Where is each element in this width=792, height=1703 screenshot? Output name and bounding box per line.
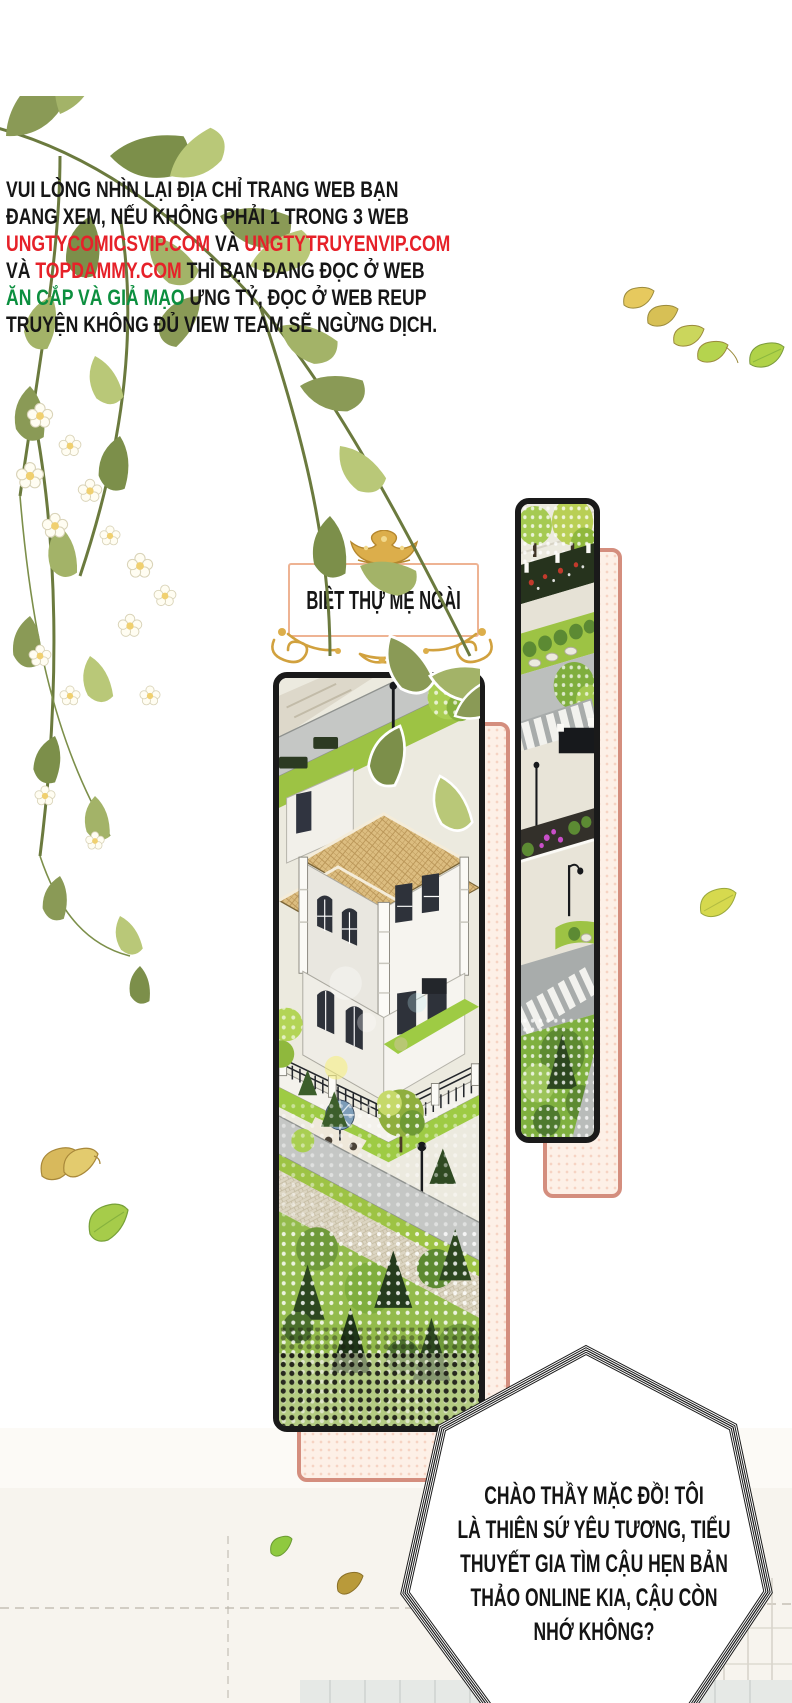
notice-line: TRUYỆN KHÔNG ĐỦ VIEW TEAM SẼ NGỪNG DỊCH. [6, 311, 454, 338]
speech-bubble-text: CHÀO THẦY MẶC ĐỒ! TÔI LÀ THIÊN SỨ YÊU TƯ… [454, 1479, 734, 1649]
notice-line: UNGTYCOMICSVIP.COM VÀ UNGTYTRUYENVIP.COM [6, 230, 454, 257]
comic-page: VUI LÒNG NHÌN LẠI ĐỊA CHỈ TRANG WEB BẠN … [0, 0, 792, 1703]
notice-line: VUI LÒNG NHÌN LẠI ĐỊA CHỈ TRANG WEB BẠN [6, 176, 454, 203]
notice-text: VUI LÒNG NHÌN LẠI ĐỊA CHỈ TRANG WEB BẠN [6, 177, 398, 202]
falling-leaf-icon [746, 340, 788, 376]
falling-leaf-icon [84, 1200, 132, 1250]
notice-text: TRUYỆN KHÔNG ĐỦ VIEW TEAM SẼ NGỪNG DỊCH. [6, 312, 437, 337]
speech-line: LÀ THIÊN SỨ YÊU TƯƠNG, TIỂU [454, 1513, 734, 1547]
notice-line: ĂN CẮP VÀ GIẢ MẠO ƯNG TỶ, ĐỌC Ở WEB REUP [6, 284, 454, 311]
anti-piracy-notice: VUI LÒNG NHÌN LẠI ĐỊA CHỈ TRANG WEB BẠN … [6, 176, 566, 338]
notice-text: ĐANG XEM, NẾU KHÔNG PHẢI 1 TRONG 3 WEB [6, 204, 409, 229]
falling-leaf-icon [696, 885, 740, 927]
site-link-text: UNGTYCOMICSVIP.COM [6, 231, 210, 256]
falling-leaf-icon [268, 1534, 294, 1562]
notice-line: ĐANG XEM, NẾU KHÔNG PHẢI 1 TRONG 3 WEB [6, 203, 454, 230]
notice-warning-text: ĂN CẮP VÀ GIẢ MẠO [6, 285, 185, 310]
falling-leaf-icon [38, 1142, 102, 1190]
speech-line: THUYẾT GIA TÌM CẬU HẸN BẢN [454, 1547, 734, 1581]
falling-leaf-icon [334, 1570, 366, 1600]
notice-line: VÀ TOPDAMMY.COM THÌ BẠN ĐANG ĐỌC Ở WEB [6, 257, 454, 284]
speech-line: CHÀO THẦY MẶC ĐỒ! TÔI [454, 1479, 734, 1513]
speech-line: THẢO ONLINE KIA, CẬU CÒN [454, 1581, 734, 1615]
speech-line: NHỚ KHÔNG? [454, 1615, 734, 1649]
street-illustration [521, 504, 594, 1137]
notice-text: VÀ [6, 258, 35, 283]
site-link-text: UNGTYTRUYENVIP.COM [244, 231, 450, 256]
street-panel [515, 498, 600, 1143]
notice-text: VÀ [210, 231, 244, 256]
notice-text: THÌ BẠN ĐANG ĐỌC Ở WEB [182, 258, 425, 283]
falling-leaf-icon [620, 285, 740, 380]
notice-text: ƯNG TỶ, ĐỌC Ở WEB REUP [185, 285, 427, 310]
site-link-text: TOPDAMMY.COM [35, 258, 181, 283]
